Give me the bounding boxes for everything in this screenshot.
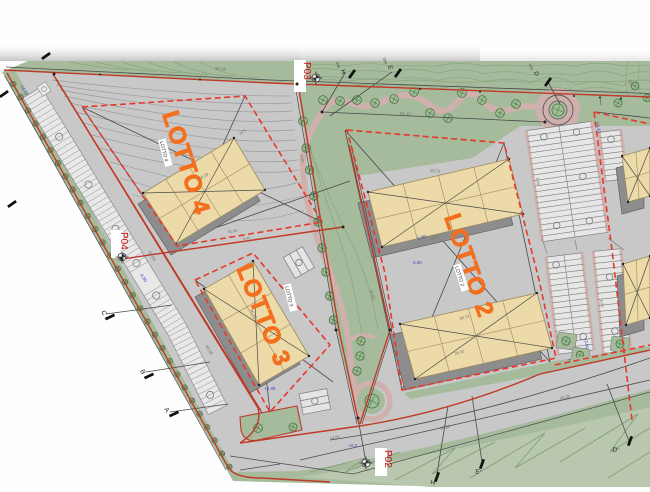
- svg-text:92.15: 92.15: [400, 111, 412, 117]
- svg-text:P03: P03: [301, 62, 312, 80]
- svg-text:98.18: 98.18: [215, 66, 227, 72]
- svg-text:T: T: [568, 358, 571, 363]
- svg-text:+2.30: +2.30: [264, 386, 276, 391]
- svg-text:P04: P04: [118, 232, 129, 250]
- svg-text:5.00: 5.00: [413, 260, 422, 265]
- svg-text:59.73: 59.73: [430, 168, 441, 174]
- svg-text:P02: P02: [382, 450, 393, 468]
- svg-text:+2.3: +2.3: [348, 443, 357, 448]
